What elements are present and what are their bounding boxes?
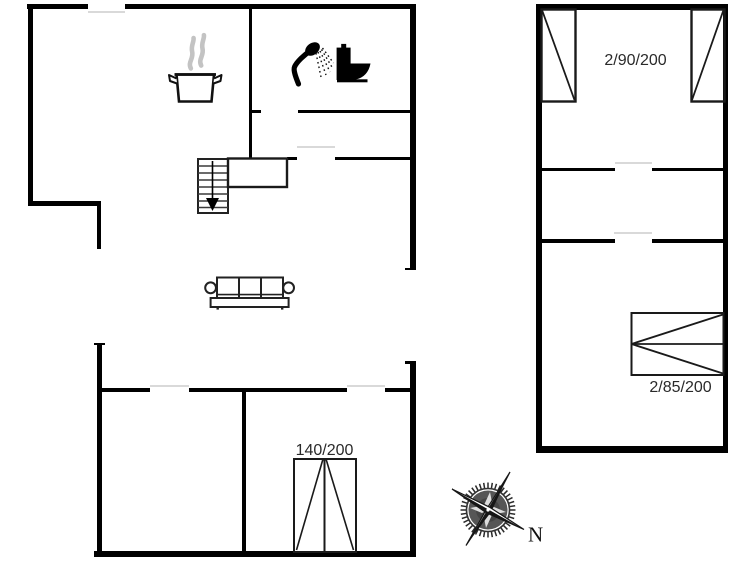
- svg-text:N: N: [528, 523, 543, 547]
